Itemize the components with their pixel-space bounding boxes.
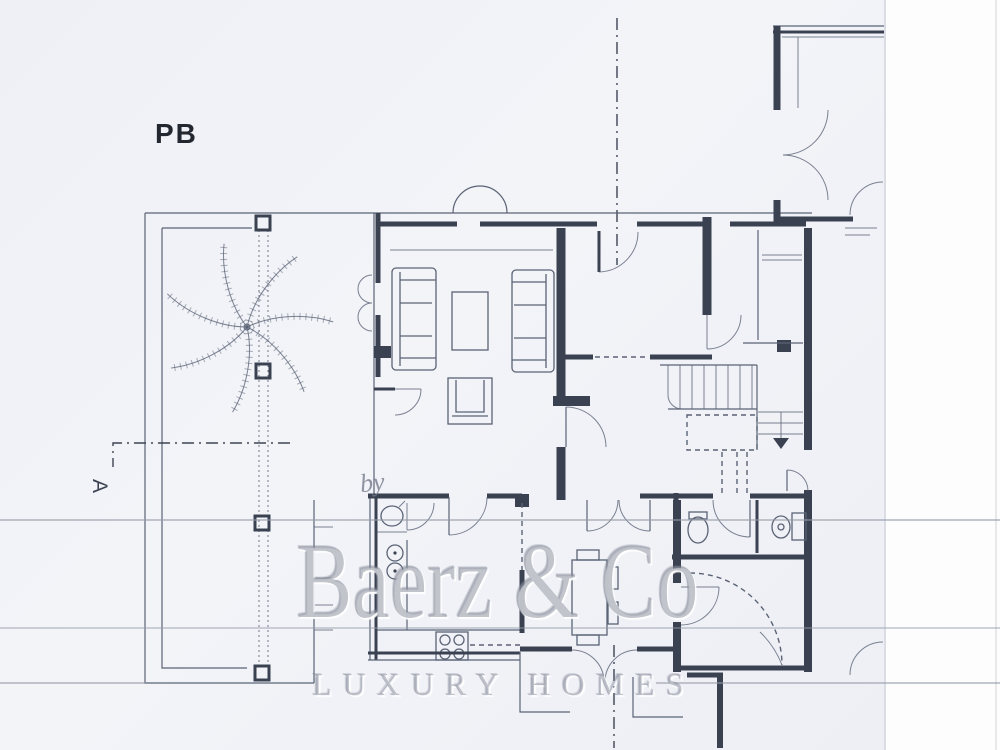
stairs-down-arrow (773, 438, 789, 449)
watermark-tagline: LUXURY HOMES (312, 666, 694, 703)
floor-plan-page: PB A by Baerz & Co LUXURY HOMES (0, 0, 1000, 750)
palm-tree (166, 243, 334, 412)
section-line-a (113, 443, 290, 467)
watermark-by: by (358, 467, 386, 499)
toilet-tank (792, 513, 806, 540)
floor-label: PB (155, 118, 198, 150)
watermark-brand: Baerz & Co (296, 528, 698, 636)
watermark-rule-tagline-right (656, 682, 1000, 684)
section-marker-label: A (87, 479, 111, 493)
staircase (557, 357, 808, 495)
watermark-rule-top (0, 519, 1000, 521)
watermark-rule-tagline-left (0, 682, 310, 684)
living-room-furniture (392, 268, 554, 424)
top-right-annex (773, 26, 884, 235)
house-top-wall (376, 186, 812, 272)
